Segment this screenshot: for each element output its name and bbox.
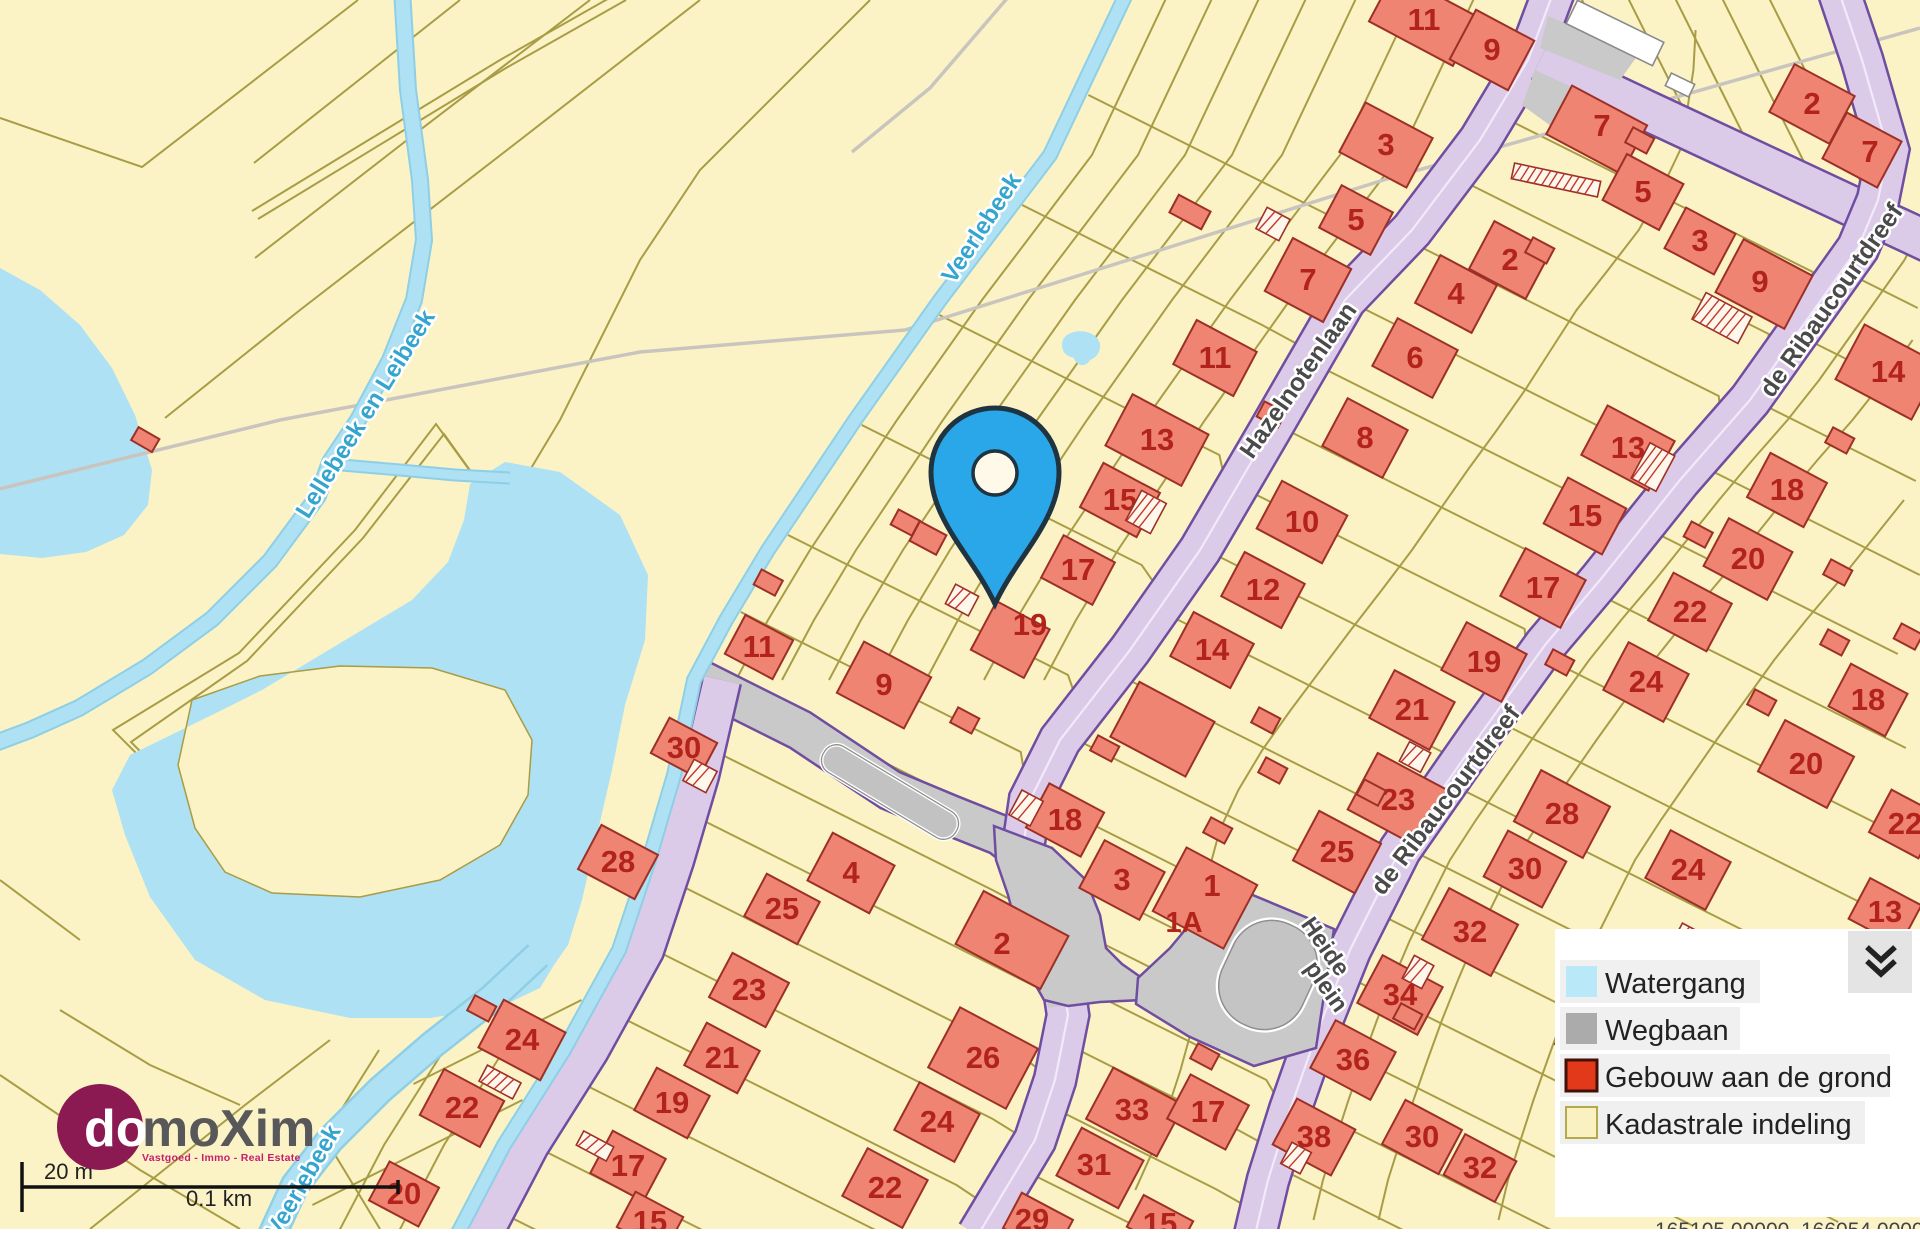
svg-text:11: 11: [1408, 2, 1441, 37]
svg-text:25: 25: [1320, 834, 1354, 869]
svg-text:5: 5: [1347, 202, 1364, 237]
svg-text:165105.00000, 166054.00000: 165105.00000, 166054.00000: [1655, 1219, 1920, 1229]
svg-text:20: 20: [387, 1176, 421, 1211]
svg-text:36: 36: [1336, 1042, 1370, 1077]
svg-text:32: 32: [1453, 914, 1487, 949]
svg-text:14: 14: [1871, 354, 1906, 389]
svg-text:2: 2: [993, 926, 1010, 961]
svg-text:Gebouw aan de grond: Gebouw aan de grond: [1605, 1062, 1892, 1094]
svg-text:21: 21: [705, 1040, 739, 1075]
svg-text:8: 8: [1356, 420, 1373, 455]
svg-text:33: 33: [1115, 1092, 1149, 1127]
svg-text:10: 10: [1285, 504, 1319, 539]
svg-text:12: 12: [1246, 572, 1280, 607]
svg-text:17: 17: [1061, 552, 1095, 587]
svg-text:32: 32: [1463, 1150, 1497, 1185]
svg-text:30: 30: [1405, 1119, 1439, 1154]
svg-text:3: 3: [1377, 127, 1394, 162]
svg-text:24: 24: [1629, 664, 1664, 699]
svg-text:1A: 1A: [1165, 907, 1202, 939]
svg-text:11: 11: [1199, 340, 1232, 375]
svg-text:2: 2: [1501, 242, 1518, 277]
svg-text:21: 21: [1395, 692, 1429, 727]
svg-text:6: 6: [1406, 340, 1423, 375]
svg-text:18: 18: [1770, 472, 1804, 507]
svg-text:31: 31: [1077, 1147, 1111, 1182]
svg-text:7: 7: [1861, 134, 1878, 169]
svg-text:3: 3: [1113, 862, 1130, 897]
svg-text:13: 13: [1611, 430, 1645, 465]
svg-text:19: 19: [1013, 607, 1047, 642]
svg-text:13: 13: [1868, 894, 1902, 929]
svg-text:24: 24: [505, 1022, 540, 1057]
svg-text:Kadastrale indeling: Kadastrale indeling: [1605, 1109, 1852, 1141]
svg-text:5: 5: [1634, 174, 1651, 209]
svg-text:23: 23: [1381, 782, 1415, 817]
svg-text:15: 15: [633, 1204, 667, 1229]
svg-text:18: 18: [1851, 682, 1885, 717]
svg-text:26: 26: [966, 1040, 1000, 1075]
svg-text:22: 22: [1888, 806, 1920, 841]
svg-text:20: 20: [1789, 746, 1823, 781]
svg-text:14: 14: [1195, 632, 1230, 667]
svg-text:30: 30: [1508, 851, 1542, 886]
svg-text:7: 7: [1299, 262, 1316, 297]
svg-text:9: 9: [1483, 32, 1500, 67]
svg-text:22: 22: [445, 1090, 479, 1125]
svg-text:2: 2: [1803, 86, 1820, 121]
svg-text:24: 24: [920, 1104, 955, 1139]
svg-text:9: 9: [1751, 264, 1768, 299]
svg-text:do: do: [84, 1100, 148, 1158]
svg-text:3: 3: [1691, 223, 1708, 258]
svg-text:18: 18: [1048, 802, 1082, 837]
svg-text:25: 25: [765, 891, 799, 926]
svg-text:28: 28: [1545, 796, 1579, 831]
svg-text:7: 7: [1593, 108, 1610, 143]
svg-text:24: 24: [1671, 852, 1706, 887]
svg-text:15: 15: [1568, 498, 1602, 533]
svg-text:1: 1: [1203, 868, 1220, 903]
svg-text:9: 9: [875, 667, 892, 702]
svg-text:17: 17: [1526, 570, 1560, 605]
svg-text:22: 22: [868, 1170, 902, 1205]
svg-text:0.1 km: 0.1 km: [186, 1186, 252, 1211]
svg-text:28: 28: [601, 844, 635, 879]
svg-text:19: 19: [1467, 644, 1501, 679]
svg-text:15: 15: [1143, 1206, 1177, 1229]
svg-text:13: 13: [1140, 422, 1174, 457]
svg-text:29: 29: [1015, 1202, 1049, 1229]
svg-text:4: 4: [842, 855, 860, 890]
svg-text:moXim: moXim: [142, 1100, 315, 1158]
svg-text:Watergang: Watergang: [1605, 968, 1746, 1000]
svg-text:20: 20: [1731, 541, 1765, 576]
svg-text:Wegbaan: Wegbaan: [1605, 1015, 1729, 1047]
svg-text:22: 22: [1673, 594, 1707, 629]
svg-text:Vastgoed - Immo - Real Estate: Vastgoed - Immo - Real Estate: [142, 1152, 301, 1164]
svg-text:4: 4: [1447, 276, 1465, 311]
svg-text:11: 11: [743, 629, 776, 664]
svg-text:17: 17: [1191, 1094, 1225, 1129]
svg-text:19: 19: [655, 1085, 689, 1120]
svg-text:17: 17: [611, 1148, 645, 1183]
svg-text:23: 23: [732, 972, 766, 1007]
